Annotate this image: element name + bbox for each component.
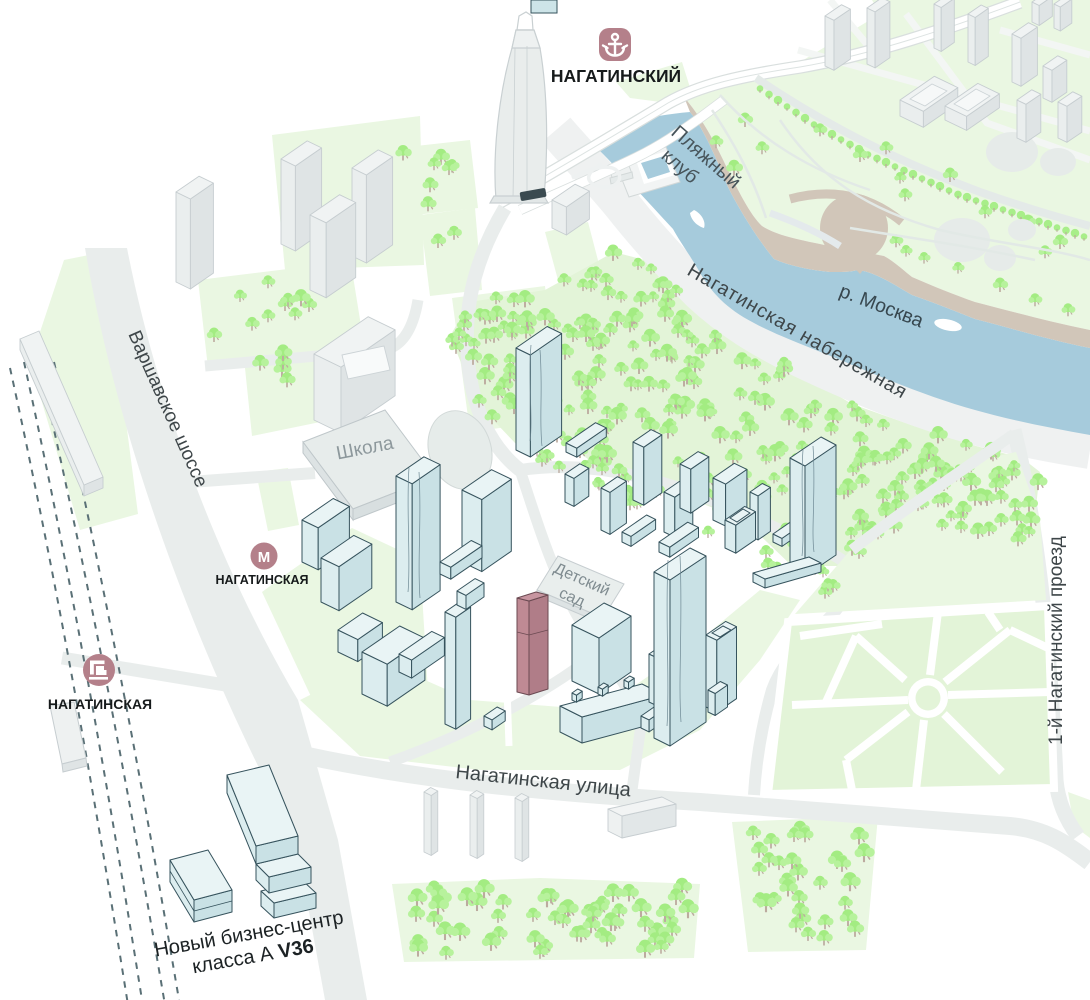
svg-text:НАГАТИНСКАЯ: НАГАТИНСКАЯ — [215, 573, 308, 587]
svg-text:М: М — [258, 549, 271, 566]
svg-text:1-й Нагатинский проезд: 1-й Нагатинский проезд — [1046, 536, 1067, 745]
svg-text:НАГАТИНСКАЯ: НАГАТИНСКАЯ — [48, 696, 152, 712]
svg-text:НАГАТИНСКИЙ: НАГАТИНСКИЙ — [551, 65, 681, 86]
